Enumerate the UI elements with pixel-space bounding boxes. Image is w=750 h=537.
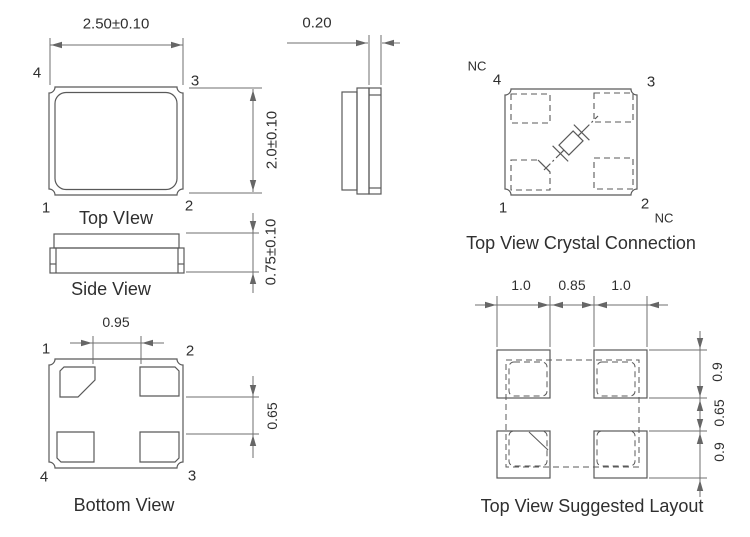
pad-1-chamfered xyxy=(511,160,550,190)
top-view-pin-2: 2 xyxy=(185,199,193,214)
pad-4 xyxy=(57,432,94,462)
layout-pad-gap-dim: 0.85 xyxy=(558,278,585,292)
pad-1-chamfered xyxy=(60,367,95,397)
top-view-dimensions xyxy=(50,38,262,193)
crystal-connection-pin-1: 1 xyxy=(499,201,507,216)
side-view-caption: Side View xyxy=(71,280,151,298)
end-view-dimensions xyxy=(287,35,400,85)
crystal-connection-nc-top: NC xyxy=(468,60,487,73)
bottom-view-row-gap-dim: 0.65 xyxy=(265,402,279,429)
layout-pad-height-bottom-dim: 0.9 xyxy=(712,442,726,461)
suggested-layout-package-overlay xyxy=(506,360,639,467)
suggested-layout-caption: Top View Suggested Layout xyxy=(481,497,704,515)
bottom-view-outline xyxy=(49,359,183,468)
top-view-pin-3: 3 xyxy=(191,74,199,89)
top-view-height-dim: 2.0±0.10 xyxy=(265,111,280,169)
bottom-view-pin-2: 2 xyxy=(186,344,194,359)
pin1-chamfer-mark xyxy=(529,432,548,450)
drawing-canvas xyxy=(0,0,750,537)
suggested-layout-lands xyxy=(497,350,647,478)
top-view-caption: Top VIew xyxy=(79,209,153,227)
pad-3 xyxy=(140,432,179,462)
bottom-view-pin-1: 1 xyxy=(42,342,50,357)
layout-pad-width-right-dim: 1.0 xyxy=(611,278,630,292)
crystal-symbol xyxy=(538,116,598,172)
layout-pad-height-top-dim: 0.9 xyxy=(710,362,724,381)
top-view-pin-1: 1 xyxy=(42,201,50,216)
pad-2 xyxy=(140,367,179,396)
crystal-connection-caption: Top View Crystal Connection xyxy=(466,234,696,252)
end-view-thickness-dim: 0.20 xyxy=(302,16,331,31)
end-view-outline xyxy=(342,88,381,194)
side-view-outline xyxy=(50,234,184,273)
top-view-outline xyxy=(49,87,183,195)
suggested-layout-dimensions xyxy=(475,296,707,497)
layout-row-gap-dim: 0.65 xyxy=(712,399,726,426)
crystal-connection-pin-3: 3 xyxy=(647,75,655,90)
crystal-connection-pin-2: 2 xyxy=(641,197,649,212)
crystal-connection-pin-4: 4 xyxy=(493,73,501,88)
technical-drawing-page: 2.50±0.10 4 3 1 2 Top VIew 2.0±0.10 0.20… xyxy=(0,0,750,537)
side-view-dimensions xyxy=(186,213,259,293)
bottom-view-pin-3: 3 xyxy=(188,469,196,484)
bottom-view-caption: Bottom View xyxy=(74,496,175,514)
side-view-height-dim: 0.75±0.10 xyxy=(264,219,279,286)
bottom-view-pin-4: 4 xyxy=(40,470,48,485)
bottom-view-pad-gap-dim: 0.95 xyxy=(102,315,129,329)
top-view-pin-4: 4 xyxy=(33,66,41,81)
layout-pad-width-left-dim: 1.0 xyxy=(511,278,530,292)
top-view-width-dim: 2.50±0.10 xyxy=(83,17,150,32)
crystal-connection-nc-bottom: NC xyxy=(655,212,674,225)
bottom-view-dimensions xyxy=(70,336,259,458)
